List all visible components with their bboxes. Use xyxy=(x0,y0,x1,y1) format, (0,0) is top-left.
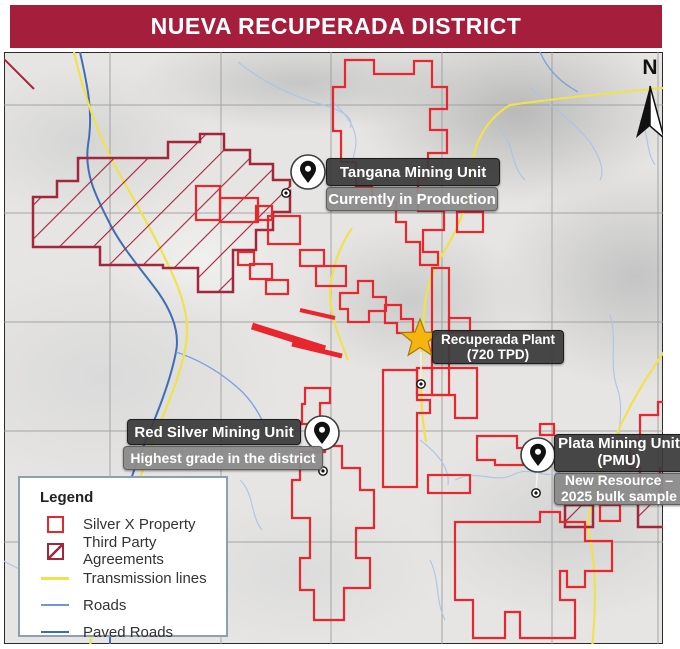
legend-item-label: Transmission lines xyxy=(83,570,207,587)
third-party-boundary-line xyxy=(4,57,34,89)
legend-item-transmission: Transmission lines xyxy=(40,568,226,588)
title-banner: NUEVA RECUPERADA DISTRICT xyxy=(10,5,662,48)
legend: Legend Silver X Property Third Party Agr… xyxy=(18,476,228,637)
tangana-title: Tangana Mining Unit xyxy=(340,164,486,181)
red-silver-title: Red Silver Mining Unit xyxy=(134,424,293,441)
plata-subtitle-callout: New Resource – 2025 bulk sample xyxy=(554,473,680,505)
recuperada-callout: Recuperada Plant (720 TPD) xyxy=(432,330,564,364)
red-silver-pin-icon xyxy=(305,416,339,450)
legend-title: Legend xyxy=(40,489,226,506)
plata-subtitle: New Resource – 2025 bulk sample xyxy=(556,473,680,504)
red-silver-subtitle-callout: Highest grade in the district xyxy=(123,446,323,470)
legend-item-silver-x: Silver X Property xyxy=(40,514,226,534)
recuperada-title: Recuperada Plant xyxy=(441,332,555,347)
legend-item-label: Roads xyxy=(83,597,126,614)
tangana-title-callout: Tangana Mining Unit xyxy=(326,158,500,186)
north-label: N xyxy=(638,56,662,80)
map-figure: NUEVA RECUPERADA DISTRICT xyxy=(0,0,680,649)
legend-item-roads: Roads xyxy=(40,595,226,615)
red-silver-subtitle: Highest grade in the district xyxy=(130,450,315,466)
plata-site-marker xyxy=(532,489,540,497)
transmission-line-swatch-icon xyxy=(40,577,70,580)
tangana-pin-icon xyxy=(291,155,325,189)
legend-item-label: Paved Roads xyxy=(83,624,173,641)
page-title: NUEVA RECUPERADA DISTRICT xyxy=(151,13,522,40)
roads-swatch-icon xyxy=(40,604,70,606)
legend-item-label: Third Party Agreements xyxy=(83,534,226,568)
red-silver-title-callout: Red Silver Mining Unit xyxy=(127,419,301,445)
legend-item-label: Silver X Property xyxy=(83,516,196,533)
road xyxy=(540,52,578,92)
plata-pin-icon xyxy=(521,438,555,472)
tangana-subtitle-callout: Currently in Production xyxy=(326,187,498,211)
legend-item-paved-roads: Paved Roads xyxy=(40,622,226,642)
plata-title: Plata Mining Unit (PMU) xyxy=(557,436,680,470)
recuperada-site-marker xyxy=(417,380,425,388)
legend-item-third-party: Third Party Agreements xyxy=(40,541,226,561)
tangana-subtitle: Currently in Production xyxy=(328,191,496,208)
north-arrow-icon xyxy=(636,86,663,138)
mining-claim-bars xyxy=(252,310,342,356)
plata-title-callout: Plata Mining Unit (PMU) xyxy=(554,434,680,472)
third-party-swatch-icon xyxy=(40,543,70,560)
recuperada-subtitle: (720 TPD) xyxy=(467,347,529,362)
paved-roads-swatch-icon xyxy=(40,631,70,634)
silver-x-swatch-icon xyxy=(40,516,70,533)
tangana-site-marker xyxy=(282,189,290,197)
